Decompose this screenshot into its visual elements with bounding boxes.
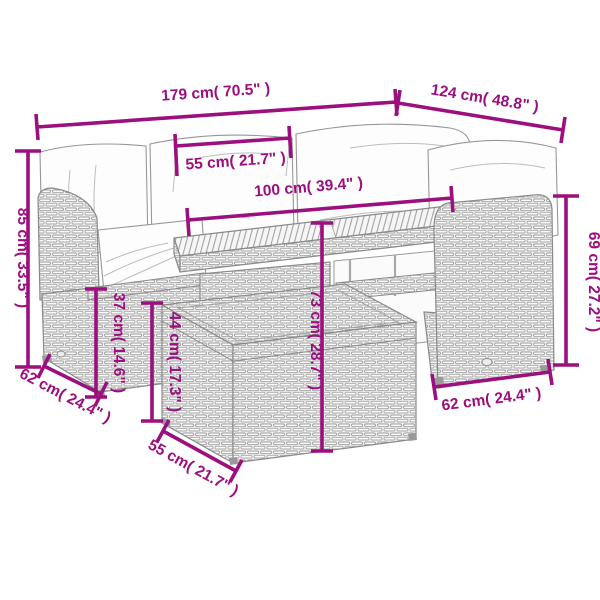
dim-seat-height-label: 37 cm( 14.6" )	[110, 293, 127, 393]
right-armrest-detail	[482, 359, 492, 366]
furniture-dimension-diagram: 179 cm( 70.5" ) 124 cm( 48.8" ) 55 cm( 2…	[0, 0, 600, 600]
dim-right-module-depth-label: 62 cm( 24.4" )	[441, 385, 543, 415]
dim-back-height-label: 85 cm( 33.5" )	[14, 208, 31, 308]
dim-sofa-total-width-label: 179 cm( 70.5" )	[161, 80, 271, 105]
right-armrest-panel	[434, 195, 554, 388]
dim-stool-height-label: 44 cm( 17.3" )	[166, 312, 183, 412]
dim-table-height-label: 73 cm( 28.7" )	[307, 290, 324, 390]
diagram-canvas: 179 cm( 70.5" ) 124 cm( 48.8" ) 55 cm( 2…	[0, 0, 600, 600]
dim-back-height: 85 cm( 33.5" )	[14, 151, 41, 367]
footstool	[162, 284, 417, 465]
dim-arm-height-label: 69 cm( 27.2" )	[585, 232, 600, 332]
left-base-detail	[57, 351, 65, 357]
dim-arm-height: 69 cm( 27.2" )	[553, 196, 600, 365]
